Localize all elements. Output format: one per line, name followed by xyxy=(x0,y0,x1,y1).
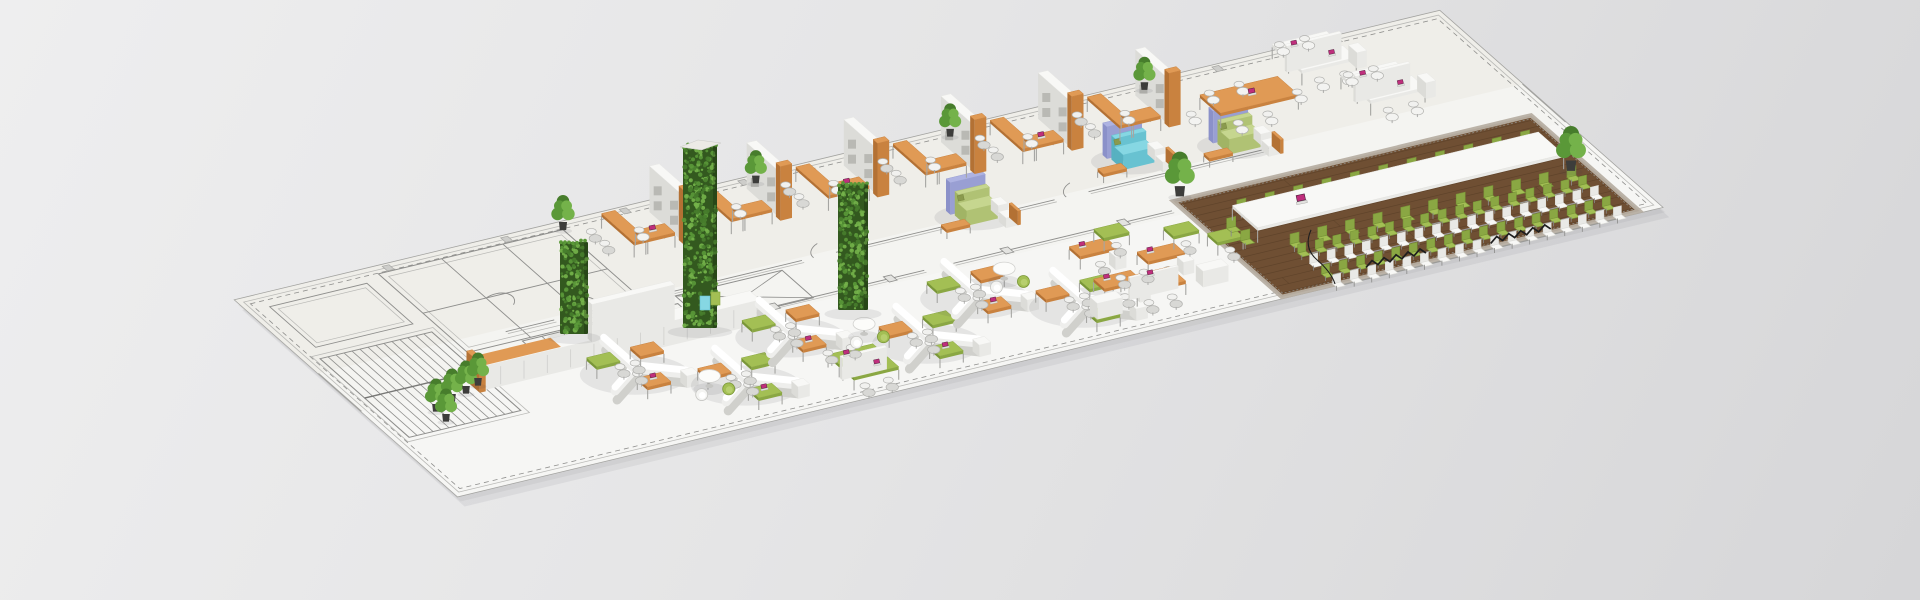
mini-locker xyxy=(711,292,720,305)
floorplan-root xyxy=(235,11,1669,507)
mini-locker xyxy=(700,296,710,310)
isometric-office-render xyxy=(0,0,1920,600)
office-floorplan-stage xyxy=(0,0,1920,600)
